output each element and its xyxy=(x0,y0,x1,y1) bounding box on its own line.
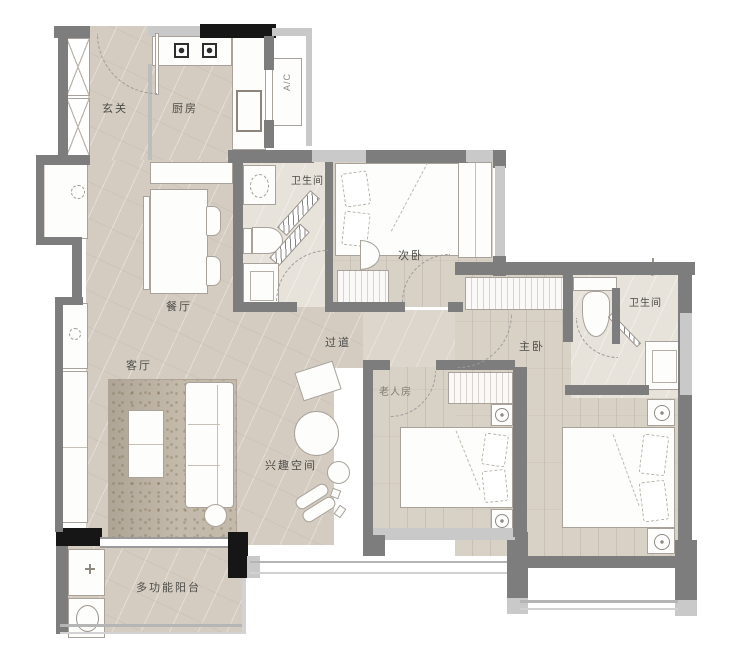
blanket-fold xyxy=(569,434,639,521)
wall-window xyxy=(312,150,368,162)
kitchen-lower-counter xyxy=(150,162,233,184)
pillow xyxy=(481,432,509,467)
basin-bowl-icon xyxy=(250,174,269,198)
toilet-tank xyxy=(243,228,252,254)
bed-second-bedroom xyxy=(335,163,467,256)
window-rail xyxy=(520,600,678,603)
room-label-master-bath: 卫生间 xyxy=(629,294,662,309)
wall-segment xyxy=(563,262,573,342)
window-rail xyxy=(242,578,246,634)
toilet-tank xyxy=(573,277,617,291)
room-label-master: 主卧 xyxy=(519,338,545,354)
wall-segment xyxy=(513,367,527,537)
wall-segment xyxy=(55,297,63,532)
stove-burner-icon xyxy=(174,43,189,58)
wall-segment xyxy=(366,150,468,163)
plant-icon xyxy=(71,185,85,199)
round-table xyxy=(294,411,339,456)
room-label-second-bedroom: 次卧 xyxy=(398,247,424,263)
ac-label: A/C xyxy=(282,73,292,91)
wardrobe xyxy=(337,270,389,304)
window-rail xyxy=(60,624,246,627)
bedside-cabinet xyxy=(458,162,492,258)
wall-segment xyxy=(233,302,297,312)
laundry-sink xyxy=(68,549,105,596)
window-rail xyxy=(520,608,678,610)
nightstand xyxy=(647,399,675,426)
room-label-kitchen: 厨房 xyxy=(172,100,198,116)
side-table xyxy=(204,504,227,527)
wall-segment xyxy=(678,268,692,548)
washer-drum-icon xyxy=(76,605,99,632)
play-item xyxy=(334,505,347,519)
sink-basin-icon xyxy=(652,350,677,383)
floor-master-vestibule xyxy=(363,310,455,367)
window-rail xyxy=(60,632,246,634)
vanity-sink xyxy=(243,263,279,307)
wall-segment xyxy=(36,155,44,245)
faucet-icon xyxy=(89,564,91,574)
tv-cabinet xyxy=(62,371,88,523)
room-label-hallway: 过道 xyxy=(325,334,351,350)
sliding-door xyxy=(100,537,228,548)
pillow xyxy=(639,434,670,477)
sofa-back xyxy=(217,385,231,505)
nightstand xyxy=(647,528,675,554)
room-label-living: 客厅 xyxy=(126,357,152,373)
wall-segment xyxy=(455,262,695,275)
window-rail xyxy=(250,561,507,563)
wall-window xyxy=(306,28,312,146)
wall-window xyxy=(495,166,505,258)
sofa-cushion-divider xyxy=(188,424,220,425)
sofa-cushion-divider xyxy=(188,465,220,466)
wall-segment xyxy=(36,155,90,165)
cabinet-divider xyxy=(475,163,476,257)
lamp-icon xyxy=(654,405,670,421)
kitchen-sink xyxy=(236,90,262,132)
wall-segment xyxy=(363,367,373,540)
bed-master xyxy=(562,427,675,528)
room-label-balcony: 多功能阳台 xyxy=(136,579,201,595)
round-stool xyxy=(327,461,350,484)
dining-chair xyxy=(206,256,221,286)
sink-basin-icon xyxy=(250,271,274,301)
sofa xyxy=(185,382,234,508)
shoe-cabinet xyxy=(66,38,90,96)
nightstand xyxy=(491,404,513,426)
wall-segment xyxy=(528,556,678,568)
window-niche xyxy=(62,303,88,369)
lamp-icon xyxy=(654,534,670,550)
lamp-icon xyxy=(495,408,509,422)
decor-icon xyxy=(69,328,81,340)
wall-pillar xyxy=(228,532,248,578)
room-label-elderly: 老人房 xyxy=(379,383,412,398)
wardrobe xyxy=(448,372,513,404)
room-label-dining: 餐厅 xyxy=(166,298,192,314)
floor-plan: A/C xyxy=(0,0,740,656)
room-label-bathroom1: 卫生间 xyxy=(291,172,324,187)
wall-segment xyxy=(333,302,405,312)
wall-segment xyxy=(264,120,274,148)
dining-bench xyxy=(143,196,150,290)
bath-sink xyxy=(645,341,682,390)
room-label-entry: 玄关 xyxy=(102,100,128,116)
pillow xyxy=(341,170,371,207)
blanket-fold xyxy=(419,431,481,506)
balcony-pillar-cap xyxy=(675,600,697,616)
cabinet-divider xyxy=(63,447,87,448)
wall-segment xyxy=(565,385,649,395)
table-divider xyxy=(129,444,163,445)
wardrobe-master xyxy=(465,277,570,310)
stove-burner-icon xyxy=(202,43,217,58)
shoe-cabinet xyxy=(66,98,90,156)
bay-window xyxy=(42,162,88,239)
kitchen-counter-top xyxy=(152,36,232,66)
room-label-hobby: 兴趣空间 xyxy=(265,457,317,473)
wall-segment xyxy=(72,243,82,303)
wall-segment xyxy=(56,546,68,634)
pillow xyxy=(481,469,508,503)
pillow xyxy=(639,480,670,523)
ac-platform: A/C xyxy=(272,58,302,126)
wall-window xyxy=(372,528,515,540)
coffee-table xyxy=(128,410,164,478)
wall-pillar xyxy=(363,535,385,556)
bed-elderly-room xyxy=(400,427,513,508)
wall-window xyxy=(247,556,260,578)
wall-segment xyxy=(448,302,463,312)
window-rail xyxy=(250,572,507,574)
dining-chair xyxy=(206,206,221,236)
wall-segment xyxy=(264,36,274,70)
washbasin xyxy=(243,165,276,205)
wall-segment xyxy=(233,162,243,312)
lamp-icon xyxy=(495,514,509,528)
dining-table xyxy=(150,189,208,294)
wall-window xyxy=(680,313,692,395)
wall-segment xyxy=(58,28,68,160)
